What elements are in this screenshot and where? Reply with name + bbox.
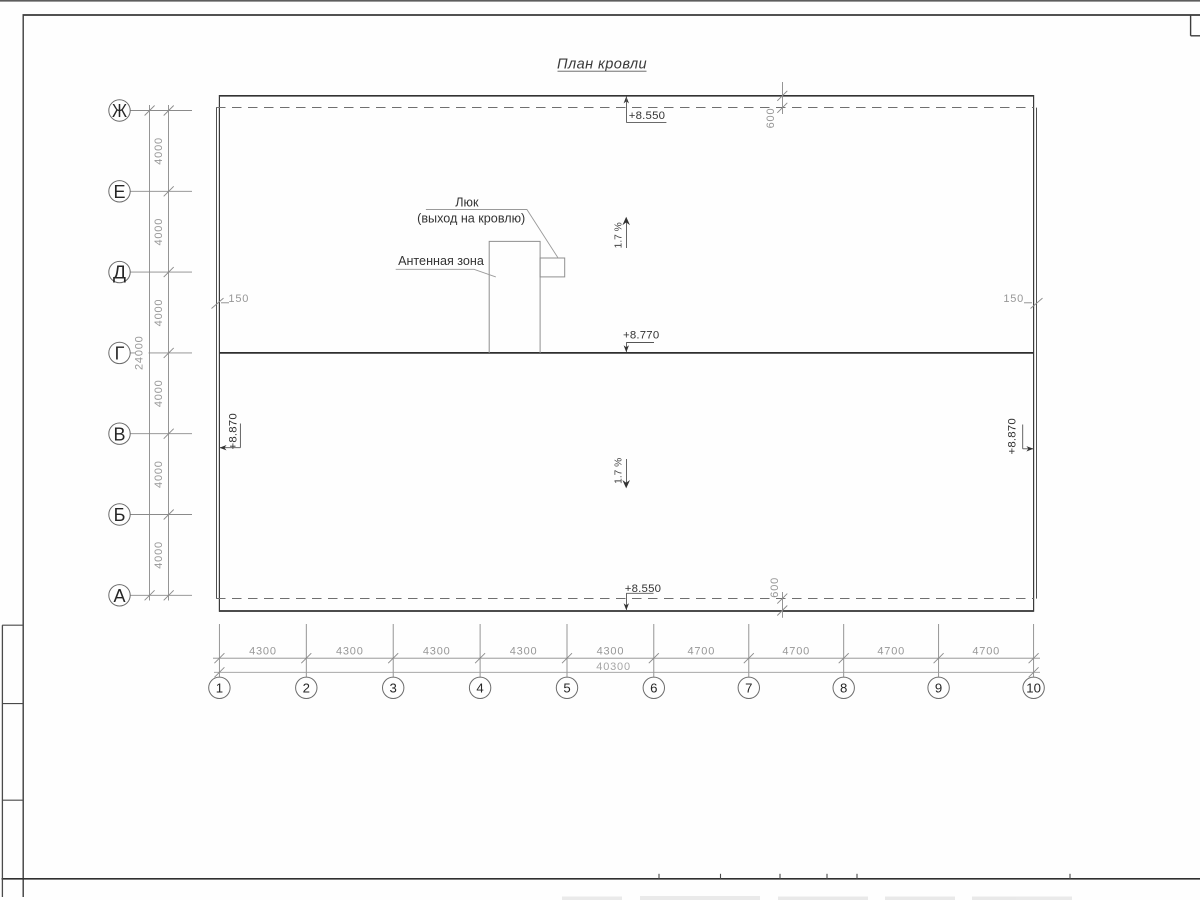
svg-text:Д: Д [113,263,126,283]
svg-text:1.7 %: 1.7 % [614,458,625,484]
svg-text:24000: 24000 [134,335,146,370]
svg-text:5: 5 [563,681,570,696]
svg-text:10: 10 [1026,681,1041,696]
svg-text:Антенная зона: Антенная зона [398,254,484,268]
svg-text:Ж: Ж [112,101,127,121]
svg-text:4300: 4300 [510,645,538,657]
svg-text:4300: 4300 [336,645,364,657]
svg-text:4000: 4000 [153,218,165,246]
svg-text:Люк: Люк [455,195,479,209]
svg-text:Г: Г [115,344,125,364]
svg-text:1.7 %: 1.7 % [614,222,625,248]
svg-text:Е: Е [113,182,125,202]
svg-text:40300: 40300 [596,661,631,673]
svg-text:4700: 4700 [877,645,905,657]
svg-text:7: 7 [745,681,752,696]
svg-text:600: 600 [769,577,781,598]
svg-text:150: 150 [1003,293,1024,305]
svg-text:4700: 4700 [972,645,1000,657]
svg-text:Б: Б [114,505,126,525]
svg-text:4000: 4000 [153,541,165,569]
svg-text:(выход на кровлю): (выход на кровлю) [417,212,525,226]
svg-text:+8.870: +8.870 [228,413,240,449]
svg-text:4000: 4000 [153,137,165,165]
svg-text:+8.550: +8.550 [629,110,665,122]
svg-text:4700: 4700 [782,645,810,657]
svg-text:2: 2 [303,681,310,696]
svg-text:4300: 4300 [423,645,451,657]
svg-text:600: 600 [765,108,777,129]
svg-text:150: 150 [228,293,249,305]
svg-text:4000: 4000 [153,460,165,488]
svg-text:3: 3 [390,681,397,696]
svg-text:4300: 4300 [249,645,277,657]
svg-text:4000: 4000 [153,379,165,407]
svg-text:План кровли: План кровли [557,57,647,73]
svg-text:В: В [113,424,125,444]
svg-text:+8.870: +8.870 [1007,418,1019,454]
svg-text:8: 8 [840,681,847,696]
svg-text:4300: 4300 [597,645,625,657]
svg-text:+8.770: +8.770 [623,330,659,342]
svg-text:9: 9 [935,681,942,696]
svg-text:6: 6 [650,681,657,696]
svg-text:1: 1 [216,681,223,696]
svg-text:4: 4 [476,681,483,696]
svg-text:4700: 4700 [687,645,715,657]
svg-text:4000: 4000 [153,299,165,327]
svg-text:А: А [113,586,125,606]
